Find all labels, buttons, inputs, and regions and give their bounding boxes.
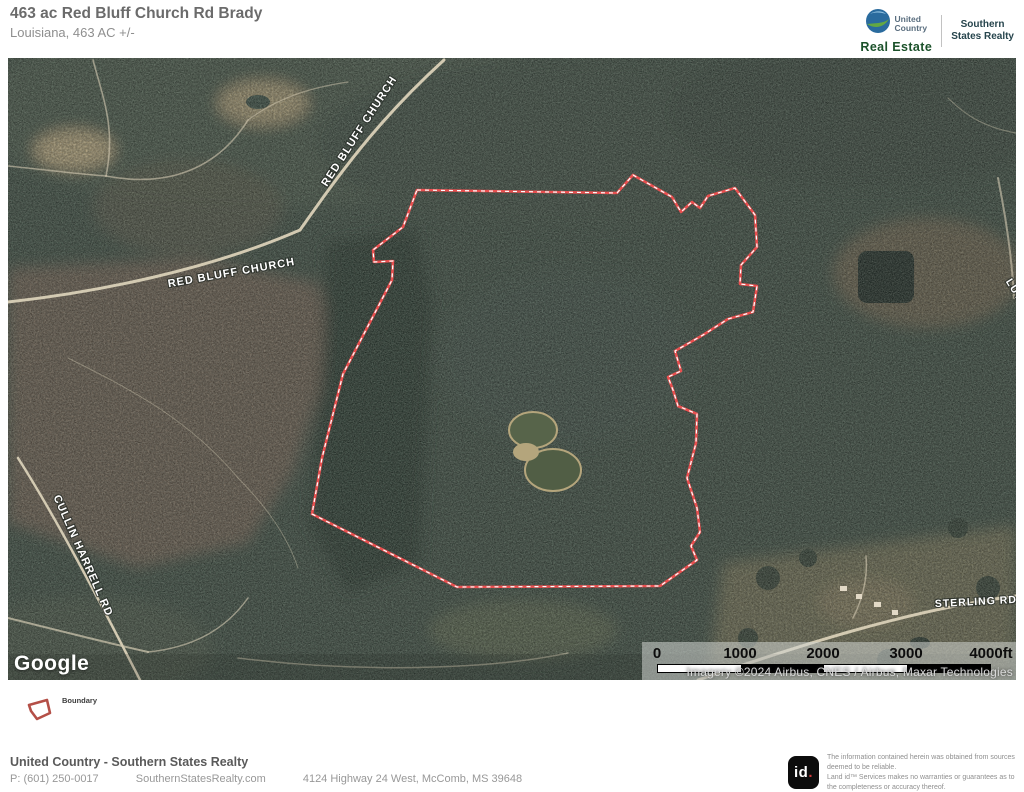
united-country-logo: United Country Real Estate — [860, 8, 932, 54]
globe-icon — [865, 8, 891, 39]
brand-logos: United Country Real Estate Southern Stat… — [860, 8, 1014, 54]
scale-tick-1000: 1000 — [723, 645, 756, 662]
footer-address: 4124 Highway 24 West, McComb, MS 39648 — [303, 773, 522, 785]
boundary-legend-icon — [22, 696, 54, 729]
land-id-logo-dot: . — [808, 764, 813, 781]
brand-real-estate: Real Estate — [860, 40, 932, 54]
footer-company-name: United Country - Southern States Realty — [10, 755, 556, 769]
satellite-map: RED BLUFF CHURCH RED BLUFF CHURCH CULLIN… — [8, 58, 1016, 680]
disclaimer-line-1: The information contained herein was obt… — [827, 753, 1016, 773]
disclaimer-text: The information contained herein was obt… — [827, 750, 1016, 792]
footer-phone: P: (601) 250-0017 — [10, 773, 99, 785]
scale-tick-0: 0 — [653, 645, 661, 662]
footer-website: SouthernStatesRealty.com — [136, 773, 266, 785]
flyer-page: 463 ac Red Bluff Church Rd Brady Louisia… — [0, 0, 1024, 792]
scale-tick-3000: 3000 — [889, 645, 922, 662]
legend: Boundary — [22, 696, 97, 705]
brand-divider — [941, 15, 942, 47]
brand-southern: Southern — [961, 19, 1005, 32]
brand-states-realty: States Realty — [951, 31, 1014, 44]
land-id-logo: id. — [788, 756, 819, 789]
imagery-attribution: Imagery ©2024 Airbus, CNES / Airbus, Max… — [687, 665, 1013, 679]
google-logo: Google — [14, 652, 89, 676]
map-scene: RED BLUFF CHURCH RED BLUFF CHURCH CULLIN… — [8, 58, 1016, 680]
page-subtitle: Louisiana, 463 AC +/- — [10, 25, 135, 40]
land-id-logo-text: id — [794, 764, 808, 781]
southern-states-realty-logo: Southern States Realty — [951, 19, 1014, 44]
footer-contact: United Country - Southern States Realty … — [10, 755, 556, 785]
disclaimer-line-2: Land id™ Services makes no warranties or… — [827, 773, 1016, 792]
header: 463 ac Red Bluff Church Rd Brady Louisia… — [0, 0, 1024, 58]
page-title: 463 ac Red Bluff Church Rd Brady — [10, 5, 262, 23]
scale-tick-4000ft: 4000ft — [969, 645, 1012, 662]
brand-country: Country — [894, 24, 927, 33]
scale-tick-2000: 2000 — [806, 645, 839, 662]
boundary-legend-label: Boundary — [62, 696, 97, 705]
footer-disclaimer-block: id. The information contained herein was… — [788, 750, 1016, 792]
